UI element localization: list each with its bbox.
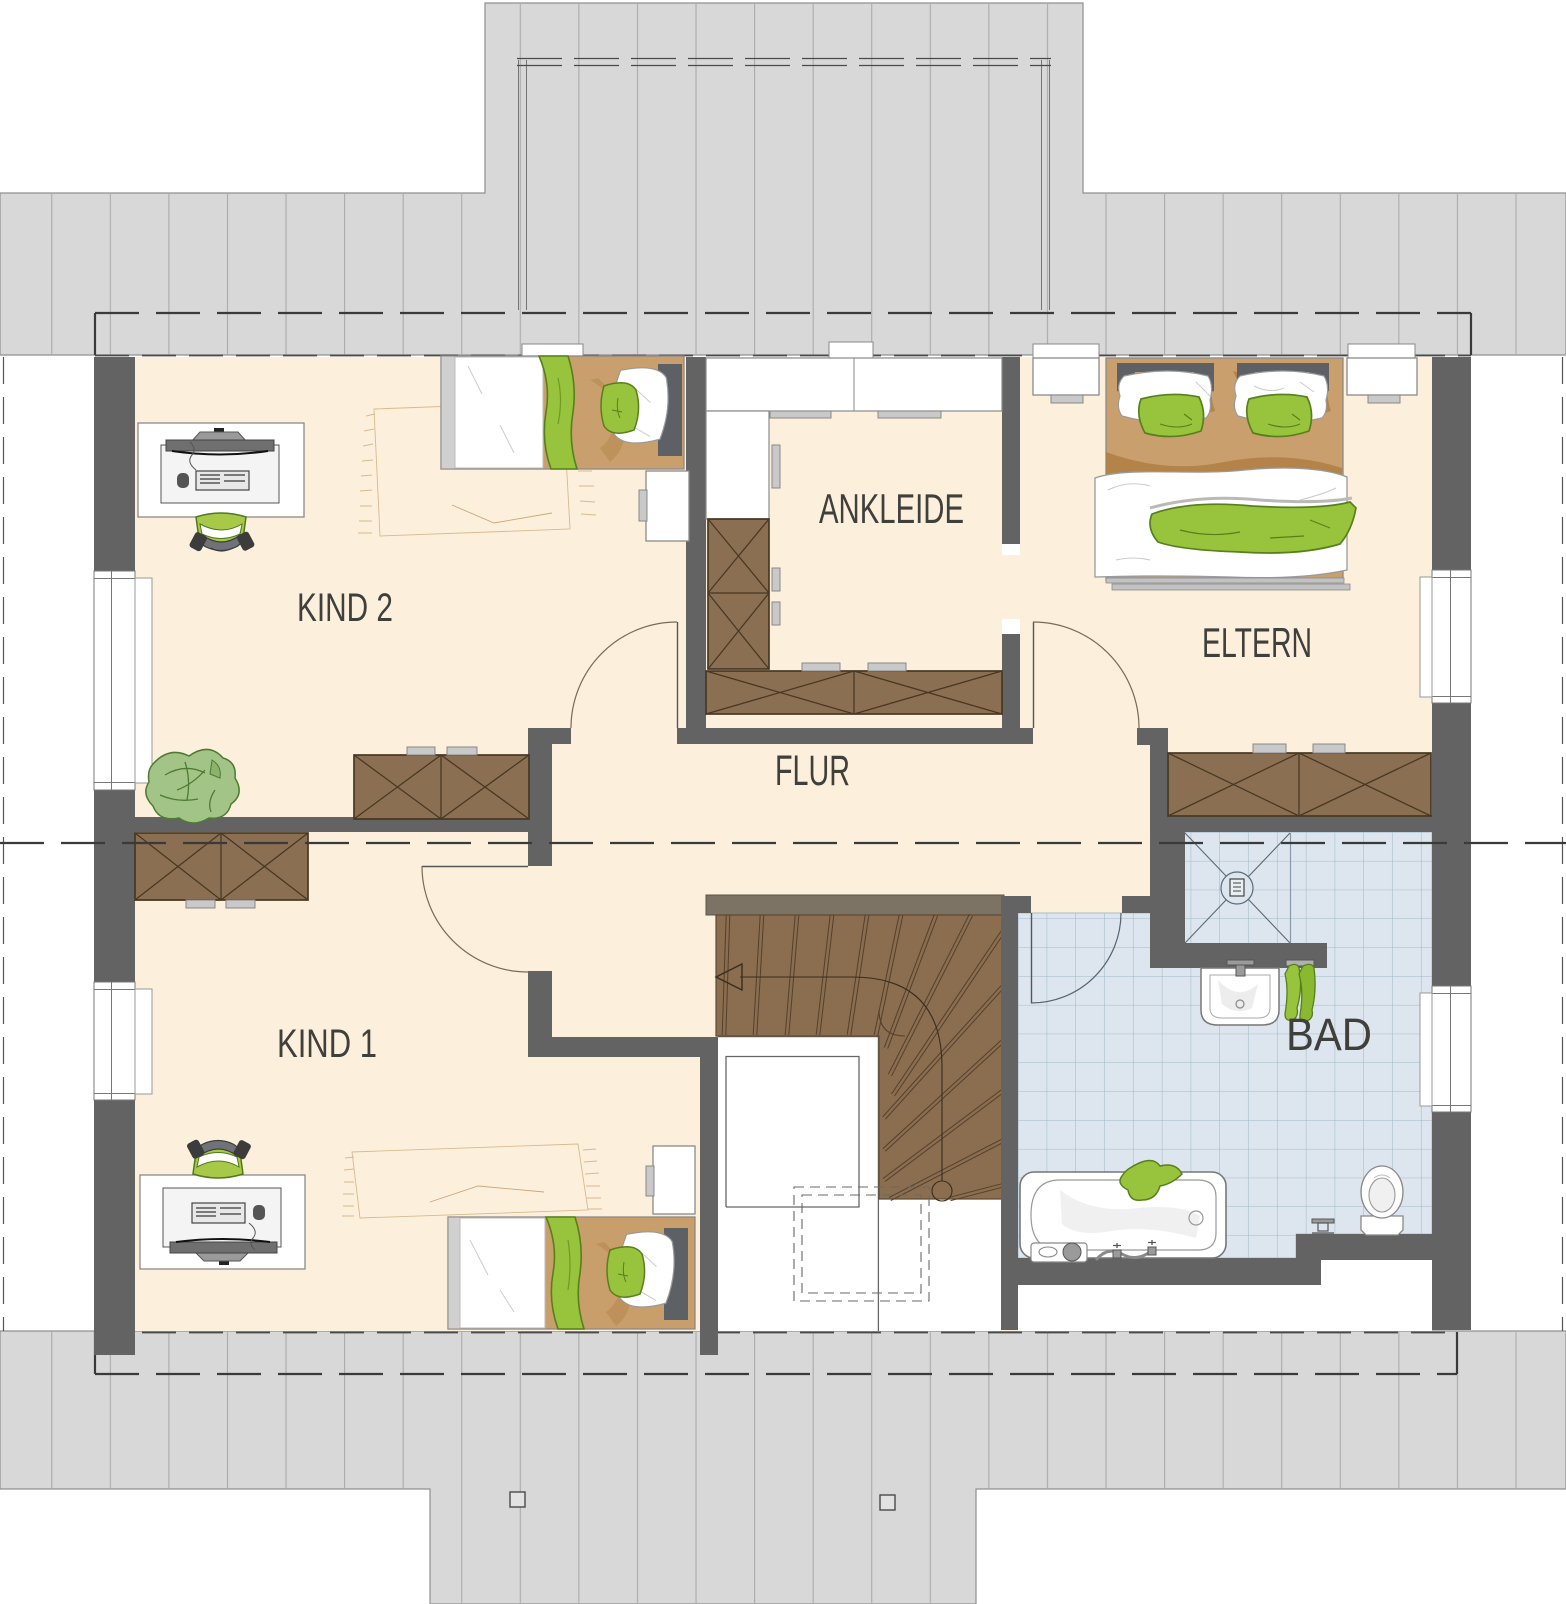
svg-text:FLUR: FLUR (775, 747, 850, 795)
svg-text:ELTERN: ELTERN (1202, 619, 1312, 666)
svg-text:BAD: BAD (1286, 1009, 1372, 1060)
svg-text:KIND 2: KIND 2 (297, 586, 393, 630)
svg-text:ANKLEIDE: ANKLEIDE (819, 485, 964, 532)
svg-text:KIND 1: KIND 1 (277, 1022, 377, 1066)
